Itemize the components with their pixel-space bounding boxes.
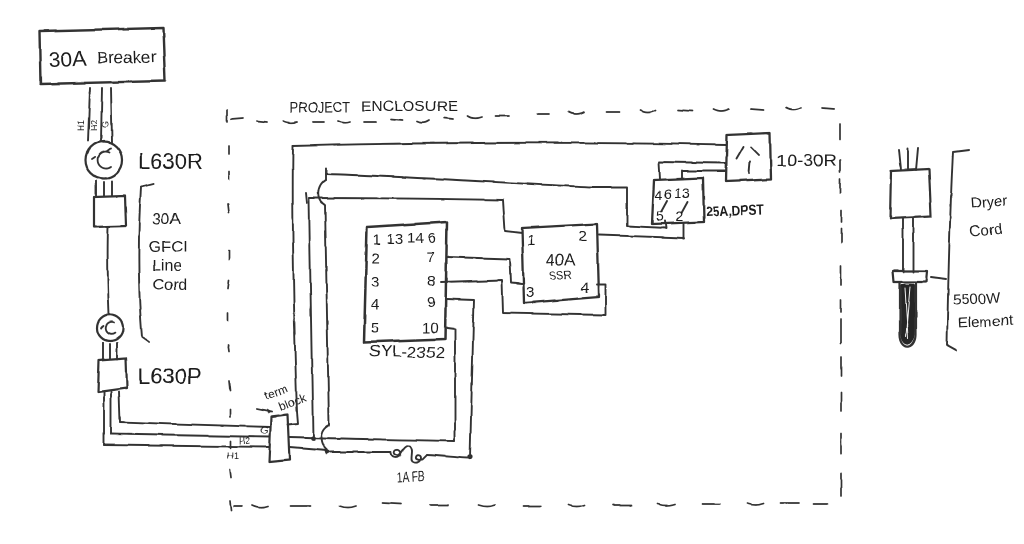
svg-text:3: 3 [682,185,690,201]
svg-text:GFCI: GFCI [149,239,187,256]
svg-text:13: 13 [387,231,404,248]
svg-text:4: 4 [581,280,589,297]
svg-text:Cord: Cord [969,221,1003,240]
svg-text:25A,DPST: 25A,DPST [706,201,765,219]
svg-text:L630R: L630R [138,149,203,174]
svg-text:H1: H1 [76,119,86,131]
svg-text:14: 14 [407,230,424,247]
svg-text:8: 8 [427,273,435,290]
svg-text:10-30R: 10-30R [776,151,837,170]
svg-text:L630P: L630P [138,364,202,389]
svg-text:G: G [260,425,269,437]
svg-text:4: 4 [371,296,379,313]
svg-text:6: 6 [664,186,672,202]
svg-text:1: 1 [527,232,535,249]
svg-text:9: 9 [427,294,435,311]
svg-text:SYL-2352: SYL-2352 [369,343,446,363]
svg-text:30A: 30A [152,211,181,228]
svg-text:3: 3 [526,284,534,301]
svg-text:2: 2 [371,250,379,267]
svg-text:Breaker: Breaker [96,47,156,68]
svg-text:G: G [101,121,111,128]
svg-text:Dryer: Dryer [970,192,1008,212]
svg-text:ENCLOSURE: ENCLOSURE [361,98,458,115]
svg-text:H2: H2 [239,436,251,446]
svg-text:H2: H2 [89,119,99,131]
svg-text:H1: H1 [227,451,239,461]
svg-text:PROJECT: PROJECT [290,99,350,116]
svg-text:4: 4 [655,187,663,203]
svg-text:5: 5 [656,208,664,224]
svg-text:10: 10 [422,320,439,337]
svg-text:5: 5 [371,320,379,337]
svg-text:30A: 30A [48,48,86,72]
svg-text:2: 2 [676,208,684,224]
svg-text:2: 2 [579,228,587,245]
svg-text:SSR: SSR [548,268,572,283]
svg-text:7: 7 [427,249,435,266]
svg-text:1A FB: 1A FB [396,469,425,485]
svg-text:1: 1 [674,185,682,201]
svg-text:3: 3 [371,274,379,291]
svg-text:6: 6 [428,230,436,247]
svg-text:1: 1 [373,232,381,249]
svg-text:5500W: 5500W [952,289,1001,309]
svg-text:Cord: Cord [153,277,188,294]
svg-text:Line: Line [152,258,182,275]
svg-text:Element: Element [957,312,1014,332]
